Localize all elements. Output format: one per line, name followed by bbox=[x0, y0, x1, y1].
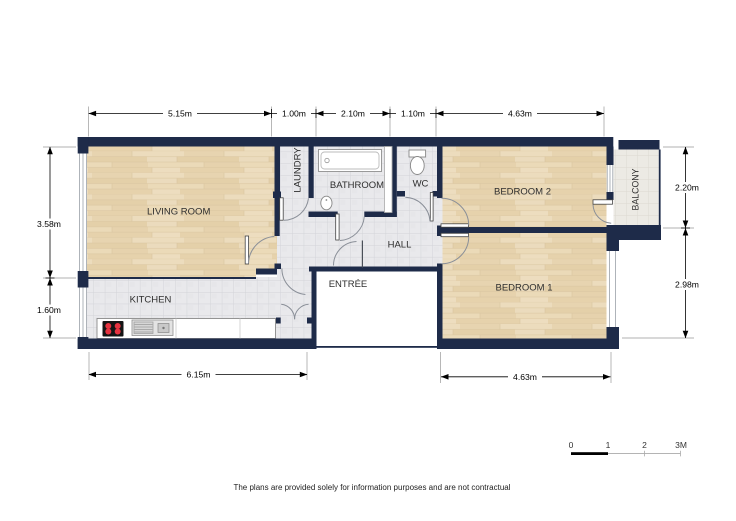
svg-text:1.00m: 1.00m bbox=[282, 109, 306, 119]
svg-text:ENTRÉE: ENTRÉE bbox=[329, 279, 368, 290]
svg-text:3.58m: 3.58m bbox=[37, 219, 61, 229]
svg-text:4.63m: 4.63m bbox=[513, 372, 537, 382]
svg-text:3M: 3M bbox=[675, 440, 687, 450]
svg-text:0: 0 bbox=[569, 440, 574, 450]
svg-text:BEDROOM 2: BEDROOM 2 bbox=[494, 186, 551, 197]
svg-text:1.60m: 1.60m bbox=[37, 305, 61, 315]
svg-text:WC: WC bbox=[413, 179, 429, 190]
svg-text:BATHROOM: BATHROOM bbox=[330, 180, 384, 191]
svg-text:KITCHEN: KITCHEN bbox=[130, 294, 172, 305]
svg-text:4.63m: 4.63m bbox=[508, 109, 532, 119]
svg-text:2.98m: 2.98m bbox=[675, 280, 699, 290]
svg-text:2.10m: 2.10m bbox=[341, 109, 365, 119]
svg-text:LAUNDRY: LAUNDRY bbox=[293, 147, 304, 193]
svg-text:The plans are provided solely: The plans are provided solely for inform… bbox=[233, 483, 510, 492]
svg-text:1: 1 bbox=[606, 440, 611, 450]
svg-text:LIVING ROOM: LIVING ROOM bbox=[147, 207, 210, 218]
svg-text:6.15m: 6.15m bbox=[187, 370, 211, 380]
svg-text:BALCONY: BALCONY bbox=[631, 168, 641, 210]
svg-text:2.20m: 2.20m bbox=[675, 183, 699, 193]
svg-text:HALL: HALL bbox=[388, 239, 412, 250]
svg-text:1.10m: 1.10m bbox=[401, 109, 425, 119]
svg-text:2: 2 bbox=[642, 440, 647, 450]
svg-text:5.15m: 5.15m bbox=[168, 109, 192, 119]
svg-text:BEDROOM 1: BEDROOM 1 bbox=[495, 282, 552, 293]
